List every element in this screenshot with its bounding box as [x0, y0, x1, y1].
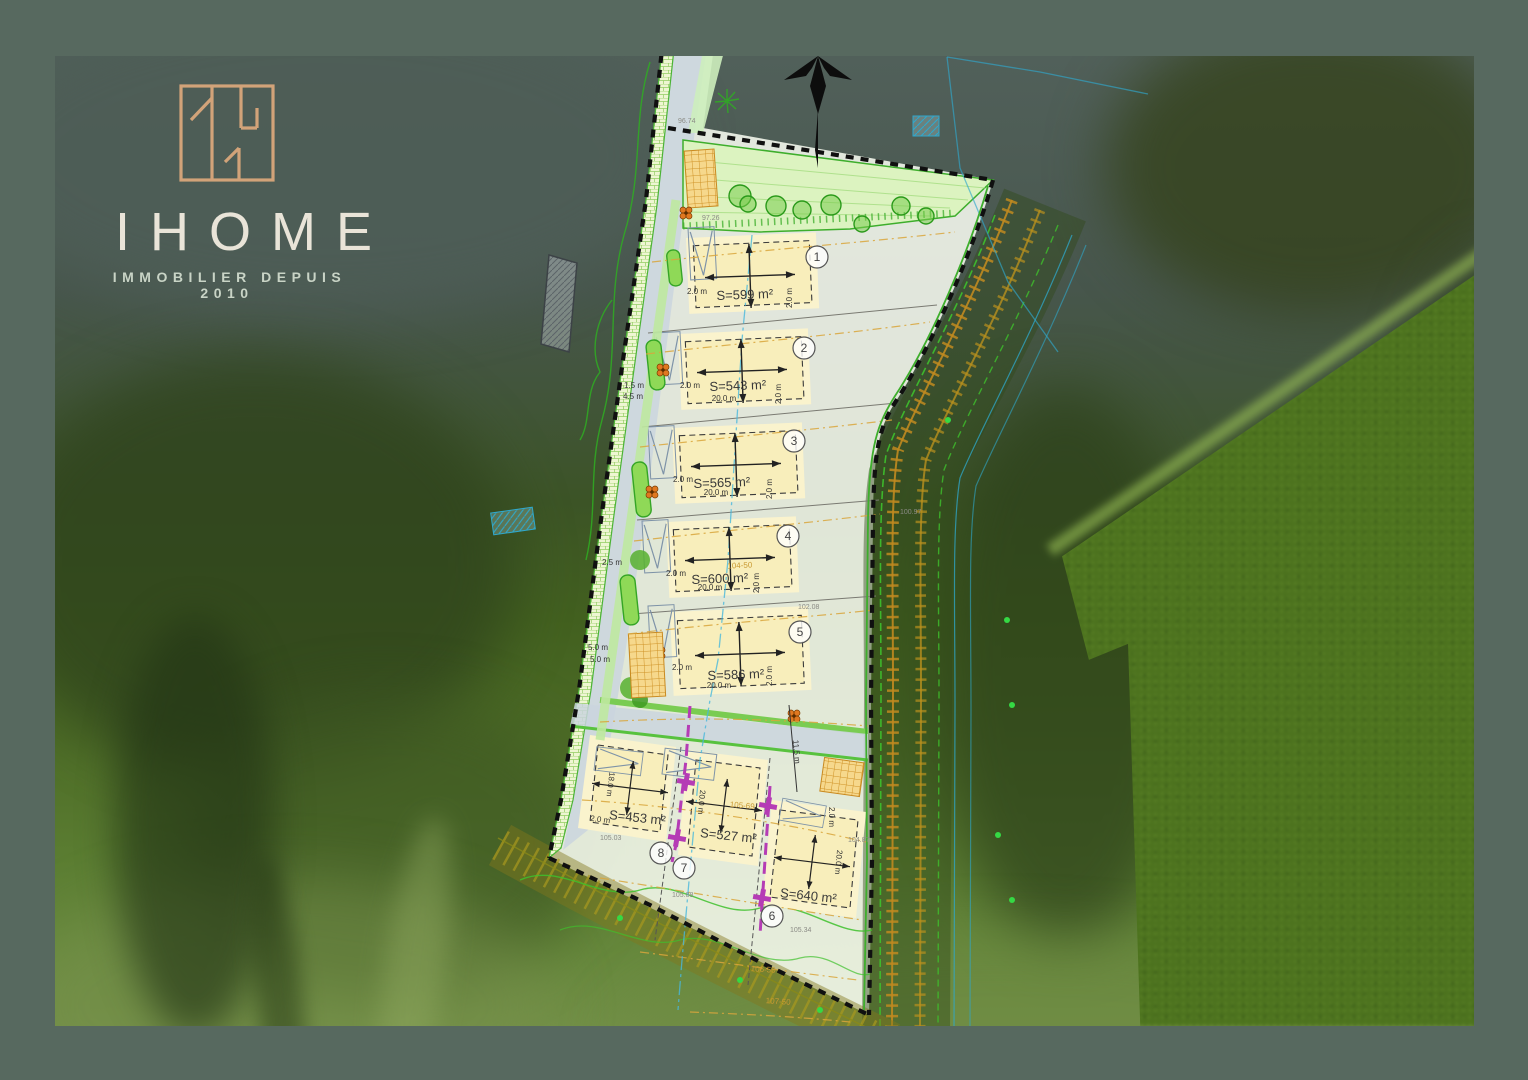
- lot-number: 1: [814, 250, 821, 264]
- dim-label: 2.0 m: [774, 384, 783, 404]
- dim-label: 2.0 m: [672, 663, 692, 672]
- paved-grid-area: [684, 149, 718, 208]
- dim-label: 20.0 m: [707, 681, 732, 690]
- lot-number: 5: [797, 625, 804, 639]
- dim-label: 5.0 m: [590, 655, 610, 664]
- dim-label: 20.0 m: [698, 583, 723, 592]
- lot-area-label: S=599 m²: [716, 286, 774, 303]
- lot-number: 3: [791, 434, 798, 448]
- elevation-label: 102.08: [798, 604, 820, 611]
- elevation-label: 97.26: [702, 215, 720, 222]
- elevation-label: 96.74: [678, 118, 696, 125]
- dim-label: 2.0 m: [680, 381, 700, 390]
- contour-label: 107-50: [765, 996, 791, 1007]
- dim-label: 1.5 m: [624, 381, 644, 390]
- dim-label: 2.0 m: [765, 666, 774, 686]
- contour-label: 106-50: [750, 964, 776, 975]
- dim-label: 5.0 m: [588, 643, 608, 652]
- lot-number: 6: [769, 909, 776, 923]
- dim-label: 2.0 m: [827, 807, 836, 827]
- dim-label: 4.5 m: [623, 392, 643, 401]
- dim-label: 2.0 m: [765, 479, 774, 499]
- paved-grid-area: [820, 757, 864, 796]
- elevation-label: 105.03: [600, 835, 622, 842]
- dim-label: 2.0 m: [666, 569, 686, 578]
- existing-building: [541, 255, 577, 352]
- cyan-hatched-area: [491, 507, 536, 535]
- lot-area-label: S=543 m²: [709, 377, 767, 394]
- lot-number: 8: [658, 846, 665, 860]
- dim-label: 2.5 m: [602, 558, 622, 567]
- elevation-label: 100.97: [900, 509, 922, 516]
- contour-label: 104-50: [727, 560, 753, 570]
- dim-label: 2.0 m: [673, 475, 693, 484]
- dim-label: 2.0 m: [687, 287, 707, 296]
- flyer: IHOME IMMOBILIER DEPUIS 2010: [0, 0, 1528, 1080]
- elevation-label: 105.88: [672, 892, 694, 899]
- dim-label: 20.0 m: [704, 488, 729, 497]
- cyan-hatched-area: [913, 116, 939, 136]
- elevation-label: 104.87: [848, 837, 870, 844]
- background-photo: IHOME IMMOBILIER DEPUIS 2010: [55, 56, 1474, 1026]
- dim-label: 2.0 m: [752, 573, 761, 593]
- paved-grid-area: [628, 632, 665, 698]
- plant-star-icon: [715, 89, 739, 113]
- dim-label: 20.0 m: [712, 394, 737, 403]
- lot-number: 4: [785, 529, 792, 543]
- site-plan-svg: 1 2 3 4 5 6 7 8 S=599 m²: [55, 56, 1474, 1026]
- elevation-label: 105.34: [790, 927, 812, 934]
- lot-number: 7: [681, 861, 688, 875]
- dim-label: 2.0 m: [785, 288, 794, 308]
- lot-number: 2: [801, 341, 808, 355]
